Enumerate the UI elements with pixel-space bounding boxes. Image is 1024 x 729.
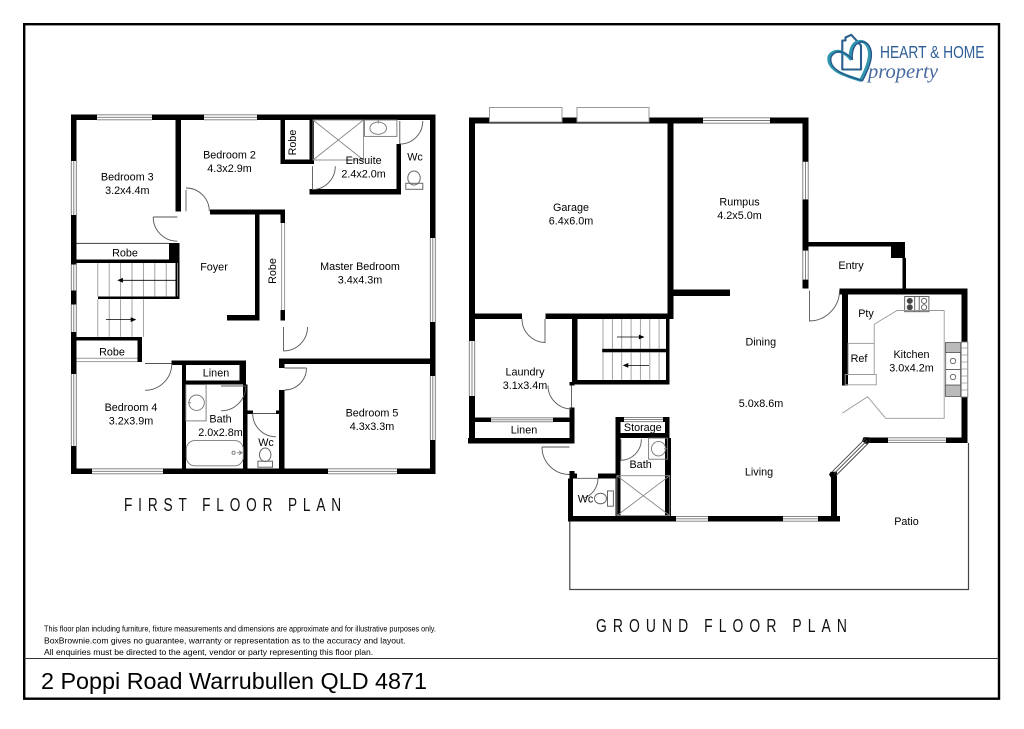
svg-text:Laundry3.1x3.4m: Laundry3.1x3.4m [503, 367, 547, 393]
svg-text:Kitchen3.0x4.2m: Kitchen3.0x4.2m [889, 349, 933, 375]
svg-text:Wc: Wc [407, 151, 423, 163]
svg-text:Robe: Robe [99, 346, 125, 358]
svg-text:Wc: Wc [578, 493, 594, 505]
svg-text:All enquiries must be directed: All enquiries must be directed to the ag… [44, 647, 373, 657]
svg-text:Linen: Linen [511, 424, 537, 436]
svg-text:HEART & HOME: HEART & HOME [880, 42, 985, 62]
svg-text:Living: Living [745, 467, 773, 479]
svg-text:Ensuite2.4x2.0m: Ensuite2.4x2.0m [341, 155, 385, 181]
svg-text:property: property [866, 62, 938, 83]
svg-text:Ref: Ref [851, 353, 869, 365]
svg-text:Bedroom 54.3x3.3m: Bedroom 54.3x3.3m [346, 407, 399, 433]
svg-text:Linen: Linen [203, 368, 229, 380]
svg-text:Patio: Patio [894, 516, 919, 528]
svg-text:Entry: Entry [838, 260, 864, 272]
svg-text:FIRST FLOOR PLAN: FIRST FLOOR PLAN [124, 494, 347, 515]
svg-text:Robe: Robe [112, 247, 138, 259]
svg-text:Wc: Wc [258, 437, 274, 449]
svg-text:GROUND FLOOR PLAN: GROUND FLOOR PLAN [596, 615, 853, 636]
svg-text:5.0x8.6m: 5.0x8.6m [739, 398, 783, 410]
svg-text:Rumpus4.2x5.0m: Rumpus4.2x5.0m [717, 197, 761, 223]
svg-text:Foyer: Foyer [200, 261, 228, 273]
svg-text:Garage6.4x6.0m: Garage6.4x6.0m [549, 202, 593, 228]
svg-text:Robe: Robe [287, 130, 299, 156]
svg-text:BoxBrownie.com gives no guaran: BoxBrownie.com gives no guarantee, warra… [44, 635, 406, 645]
svg-text:Bedroom 33.2x4.4m: Bedroom 33.2x4.4m [101, 172, 154, 198]
svg-text:Bedroom 24.3x2.9m: Bedroom 24.3x2.9m [203, 150, 256, 176]
svg-text:Bedroom 43.2x3.9m: Bedroom 43.2x3.9m [105, 402, 158, 428]
svg-text:Pty: Pty [858, 308, 874, 320]
svg-text:2 Poppi Road Warrubullen QLD 4: 2 Poppi Road Warrubullen QLD 4871 [41, 668, 427, 694]
svg-text:Bath: Bath [629, 459, 651, 471]
svg-text:Dining: Dining [745, 336, 776, 348]
svg-text:This floor plan including furn: This floor plan including furniture, fix… [44, 624, 436, 634]
svg-text:Robe: Robe [267, 258, 279, 284]
svg-text:Storage: Storage [624, 422, 662, 434]
